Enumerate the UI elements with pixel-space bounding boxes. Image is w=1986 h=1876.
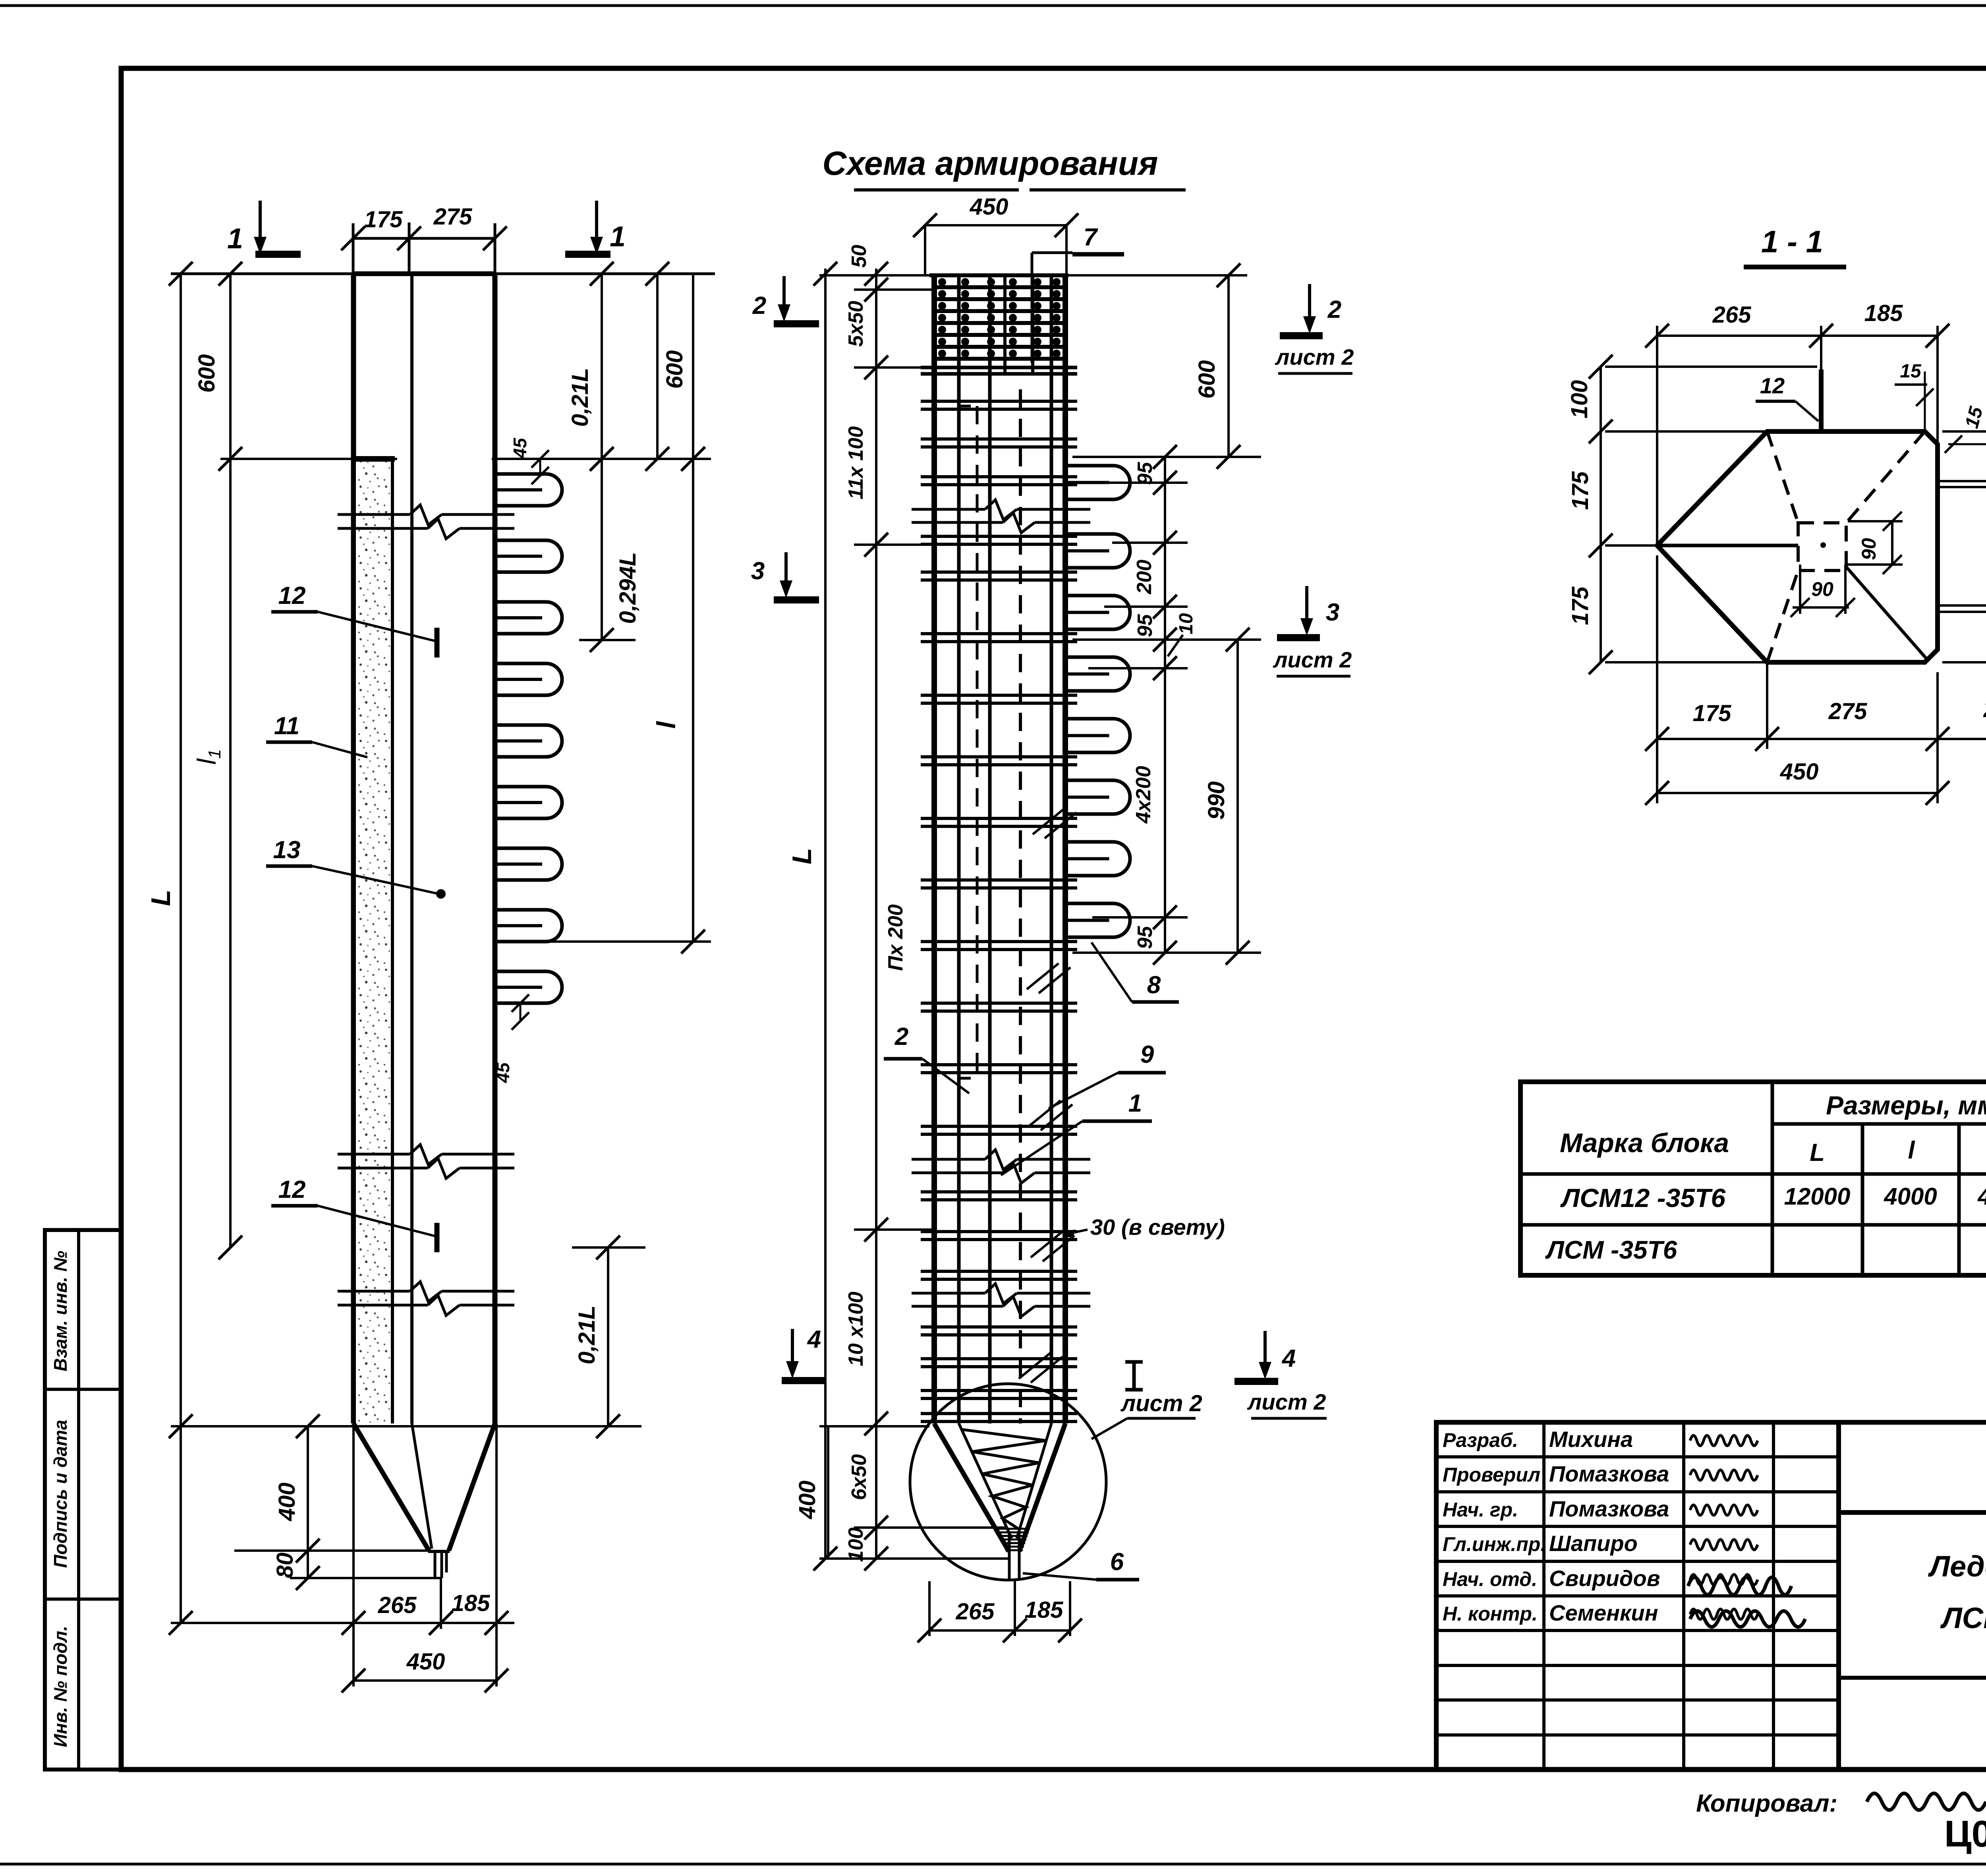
svg-text:10: 10 bbox=[1176, 613, 1197, 634]
svg-text:Нач. гр.: Нач. гр. bbox=[1443, 1499, 1518, 1521]
svg-text:Семенкин: Семенкин bbox=[1549, 1600, 1658, 1625]
svg-text:275: 275 bbox=[433, 204, 473, 230]
svg-text:50: 50 bbox=[848, 245, 871, 268]
svg-text:L: L bbox=[146, 890, 176, 906]
svg-text:265: 265 bbox=[1712, 302, 1752, 328]
svg-text:2: 2 bbox=[752, 292, 766, 319]
svg-text:90: 90 bbox=[1811, 578, 1833, 600]
svg-text:1: 1 bbox=[1128, 1090, 1142, 1117]
svg-text:Копировал:: Копировал: bbox=[1696, 1790, 1837, 1817]
svg-text:5х50: 5х50 bbox=[844, 301, 867, 347]
svg-text:Разраб.: Разраб. bbox=[1443, 1429, 1518, 1451]
svg-text:Подпись и дата: Подпись и дата bbox=[50, 1420, 71, 1568]
svg-text:100: 100 bbox=[1567, 380, 1592, 419]
svg-text:лист 2: лист 2 bbox=[1275, 344, 1354, 369]
svg-text:450: 450 bbox=[970, 194, 1008, 220]
svg-text:175: 175 bbox=[364, 207, 403, 232]
svg-text:Н. контр.: Н. контр. bbox=[1443, 1603, 1538, 1625]
svg-text:лист 2: лист 2 bbox=[1247, 1389, 1326, 1414]
svg-text:L: L bbox=[1810, 1139, 1825, 1166]
svg-text:1 - 1: 1 - 1 bbox=[1761, 224, 1823, 259]
svg-text:лист 2: лист 2 bbox=[1273, 647, 1352, 672]
svg-text:Гл.инж.пр.: Гл.инж.пр. bbox=[1443, 1533, 1546, 1555]
svg-text:175: 175 bbox=[1567, 586, 1593, 625]
svg-text:13: 13 bbox=[273, 836, 301, 864]
svg-text:4600: 4600 bbox=[1977, 1183, 1986, 1210]
svg-text:2: 2 bbox=[894, 1023, 908, 1050]
svg-text:265: 265 bbox=[378, 1592, 417, 1618]
svg-text:12000: 12000 bbox=[1784, 1183, 1851, 1210]
svg-text:Размеры, мм: Размеры, мм bbox=[1826, 1091, 1986, 1120]
svg-text:ЛСМ -35Т6: ЛСМ -35Т6 bbox=[1545, 1236, 1677, 1264]
svg-text:200: 200 bbox=[1983, 696, 1986, 722]
svg-text:12: 12 bbox=[1760, 373, 1785, 398]
svg-text:600: 600 bbox=[1194, 360, 1220, 399]
svg-text:185: 185 bbox=[452, 1590, 491, 1616]
svg-text:Проверил: Проверил bbox=[1443, 1464, 1540, 1486]
svg-text:80: 80 bbox=[272, 1553, 298, 1578]
svg-text:Михина: Михина bbox=[1549, 1427, 1633, 1452]
svg-text:30 (в свету): 30 (в свету) bbox=[1090, 1215, 1225, 1240]
svg-text:275: 275 bbox=[1828, 698, 1868, 724]
svg-text:11х 100: 11х 100 bbox=[844, 426, 867, 499]
svg-text:Помазкова: Помазкова bbox=[1549, 1461, 1669, 1486]
svg-text:12: 12 bbox=[278, 582, 306, 609]
svg-text:L: L bbox=[787, 848, 817, 865]
svg-text:3: 3 bbox=[751, 557, 765, 585]
svg-text:Ледорезная свая: Ледорезная свая bbox=[1928, 1550, 1986, 1583]
svg-text:45: 45 bbox=[493, 1062, 513, 1083]
svg-text:Шапиро: Шапиро bbox=[1549, 1531, 1638, 1556]
svg-text:1: 1 bbox=[610, 221, 626, 253]
svg-text:Схема армирования: Схема армирования bbox=[822, 145, 1158, 182]
svg-text:175: 175 bbox=[1567, 471, 1593, 510]
svg-text:95: 95 bbox=[1134, 926, 1157, 949]
svg-text:400: 400 bbox=[274, 1483, 300, 1522]
svg-text:90: 90 bbox=[1858, 538, 1880, 560]
svg-text:Свиридов: Свиридов bbox=[1549, 1566, 1660, 1591]
svg-text:8: 8 bbox=[1147, 971, 1161, 999]
svg-text:95: 95 bbox=[1134, 614, 1157, 637]
svg-text:12: 12 bbox=[278, 1176, 306, 1203]
svg-text:0,21L: 0,21L bbox=[574, 1305, 600, 1364]
svg-text:15: 15 bbox=[1900, 361, 1922, 382]
svg-text:ЛСМ12 -35Т6: ЛСМ12 -35Т6 bbox=[1560, 1183, 1726, 1213]
svg-text:6х50: 6х50 bbox=[848, 1454, 871, 1500]
svg-text:4: 4 bbox=[807, 1326, 821, 1353]
svg-text:100: 100 bbox=[844, 1528, 867, 1562]
svg-text:600: 600 bbox=[194, 354, 220, 393]
svg-text:Инв. № подл.: Инв. № подл. bbox=[50, 1626, 71, 1747]
svg-text:Нач. отд.: Нач. отд. bbox=[1443, 1568, 1537, 1590]
svg-text:4000: 4000 bbox=[1884, 1183, 1937, 1210]
svg-text:450: 450 bbox=[406, 1649, 445, 1675]
svg-text:990: 990 bbox=[1204, 781, 1229, 820]
svg-text:200: 200 bbox=[1133, 560, 1156, 595]
svg-text:9: 9 bbox=[1140, 1041, 1154, 1068]
svg-text:l: l bbox=[651, 721, 681, 729]
svg-text:Пх 200: Пх 200 bbox=[884, 904, 907, 971]
svg-text:265: 265 bbox=[956, 1599, 995, 1625]
svg-text:450: 450 bbox=[1780, 759, 1819, 785]
svg-text:Помазкова: Помазкова bbox=[1549, 1496, 1669, 1521]
svg-text:185: 185 bbox=[1025, 1597, 1064, 1623]
svg-text:2: 2 bbox=[1327, 296, 1341, 323]
svg-text:400: 400 bbox=[794, 1481, 820, 1520]
svg-text:11: 11 bbox=[274, 712, 299, 740]
svg-text:Ц00079: Ц00079 bbox=[1944, 1813, 1986, 1855]
svg-text:7: 7 bbox=[1084, 224, 1098, 251]
svg-text:4: 4 bbox=[1281, 1345, 1296, 1372]
svg-text:лист 2: лист 2 bbox=[1120, 1391, 1202, 1416]
svg-text:175: 175 bbox=[1693, 700, 1732, 726]
svg-text:ЛСМ12- 35Т6: ЛСМ12- 35Т6 bbox=[1940, 1601, 1986, 1634]
svg-text:10 х100: 10 х100 bbox=[844, 1292, 867, 1366]
svg-text:6: 6 bbox=[1110, 1548, 1124, 1576]
svg-text:600: 600 bbox=[662, 350, 688, 389]
svg-text:l: l bbox=[1908, 1137, 1915, 1164]
svg-text:3: 3 bbox=[1326, 599, 1339, 626]
svg-text:Взам. инв. №: Взам. инв. № bbox=[50, 1251, 71, 1371]
svg-text:0,21L: 0,21L bbox=[567, 368, 593, 427]
svg-text:Марка блока: Марка блока bbox=[1560, 1128, 1729, 1158]
svg-text:185: 185 bbox=[1864, 300, 1903, 326]
svg-text:4х200: 4х200 bbox=[1132, 766, 1155, 824]
svg-text:1: 1 bbox=[227, 223, 243, 255]
svg-text:0,294L: 0,294L bbox=[615, 552, 641, 624]
svg-text:45: 45 bbox=[510, 437, 530, 459]
